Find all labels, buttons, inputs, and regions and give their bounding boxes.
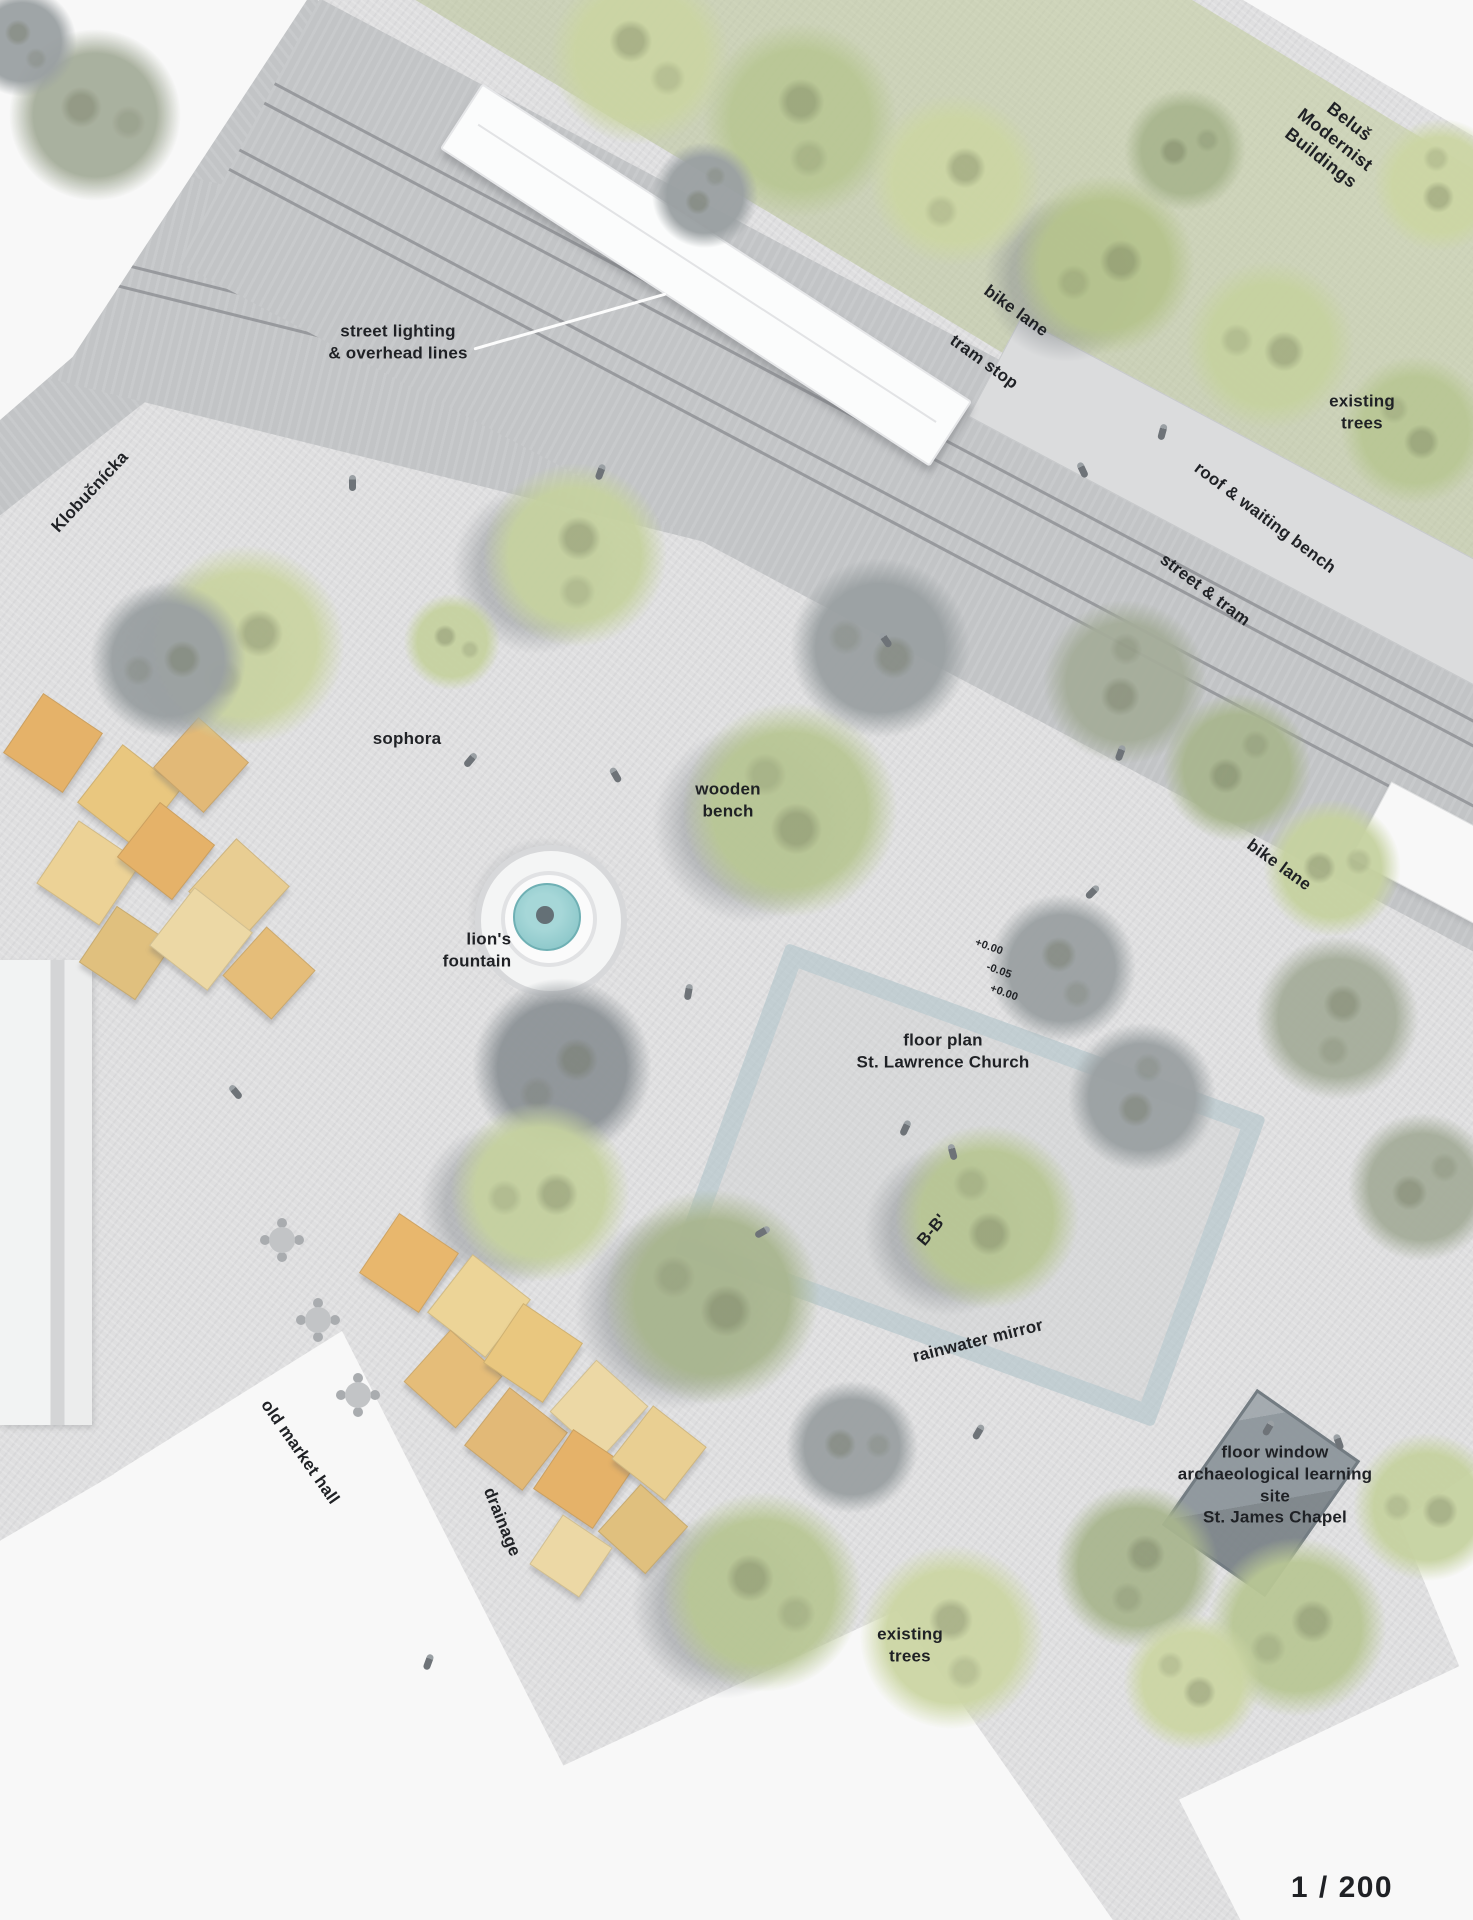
person-figure	[971, 1423, 985, 1440]
label-existing-trees-bottom: existing trees	[877, 1623, 943, 1667]
person-figure	[228, 1084, 244, 1101]
cafe-table	[269, 1227, 295, 1253]
fountain-lion-statue	[536, 906, 554, 924]
person-figure	[684, 984, 694, 1001]
label-sophora: sophora	[373, 728, 441, 750]
site-plan: Beluš Modernist Buildings bike lane tram…	[0, 0, 1473, 1920]
label-existing-trees-top: existing trees	[1329, 390, 1395, 434]
label-st-lawrence-church: floor plan St. Lawrence Church	[857, 1029, 1030, 1073]
label-wooden-bench: wooden bench	[695, 778, 760, 822]
building-left-edge	[0, 960, 92, 1425]
label-floor-window-st-james-chapel: floor window archaeological learning sit…	[1176, 1442, 1374, 1529]
person-figure	[349, 475, 356, 491]
person-figure	[463, 752, 479, 769]
person-figure	[608, 766, 622, 783]
scale-notation: 1 / 200	[1291, 1869, 1393, 1907]
label-street-lighting: street lighting & overhead lines	[328, 320, 467, 364]
cafe-table	[345, 1382, 371, 1408]
label-drainage: drainage	[478, 1484, 525, 1559]
label-lions-fountain: lion's fountain	[443, 928, 512, 972]
cafe-table	[305, 1307, 331, 1333]
